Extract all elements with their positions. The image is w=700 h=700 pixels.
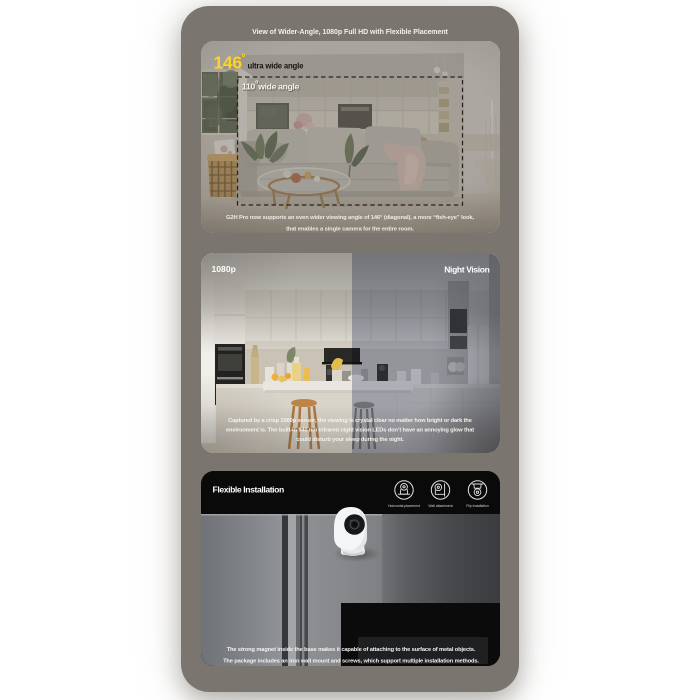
svg-text:G2H Pro now supports an even w: G2H Pro now supports an even wider viewi… [226,215,475,221]
svg-text:that enables a single camera f: that enables a single camera for the ent… [286,227,414,233]
svg-text:Flexible Installation: Flexible Installation [213,485,284,495]
svg-text:wide angle: wide angle [257,82,299,92]
svg-text:Horizontal placement: Horizontal placement [388,504,420,508]
svg-text:Captured by a crisp 1080p sens: Captured by a crisp 1080p sensor, the vi… [228,418,472,424]
svg-text:Flip installation: Flip installation [466,504,489,508]
svg-text:1080p: 1080p [212,264,236,274]
svg-text:Wall attachment: Wall attachment [428,504,452,508]
svg-text:The strong magnet inside the b: The strong magnet inside the base makes … [227,647,476,653]
svg-text:Night Vision: Night Vision [444,265,489,275]
svg-text:146: 146 [214,53,243,73]
svg-text:110: 110 [242,82,255,92]
svg-text:environment is. The built-in 9: environment is. The built-in 940 nm infr… [226,428,474,434]
svg-text:The package includes an iron w: The package includes an iron wall mount … [223,659,479,665]
svg-text:could disturb your sleep durin: could disturb your sleep during the nigh… [296,437,404,443]
svg-text:ultra wide angle: ultra wide angle [248,62,305,71]
svg-text:o: o [242,52,246,59]
